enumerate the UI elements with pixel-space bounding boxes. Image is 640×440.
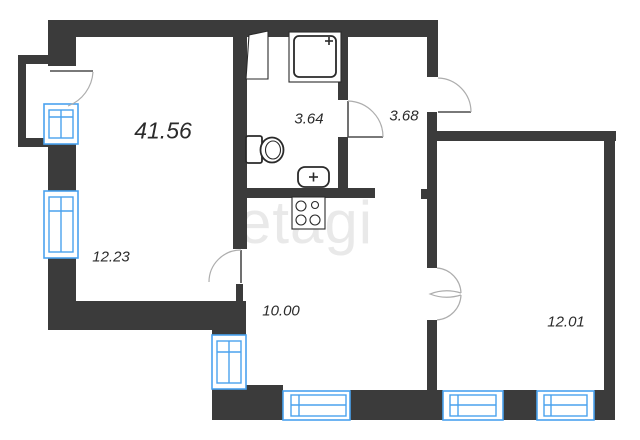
floor-plan: etagi [0, 0, 640, 440]
stove-icon [292, 197, 325, 229]
window-bedroom-bottom-left [443, 391, 503, 420]
shower-icon [289, 32, 341, 82]
total-area-label: 41.56 [134, 118, 192, 145]
washbasin-icon [298, 167, 329, 187]
floor-plan-page: { "title": "apartment floor plan", "wate… [0, 0, 640, 440]
bedroom-area-label: 12.01 [547, 314, 585, 331]
hallway-area-label: 3.68 [389, 108, 418, 125]
living-room-door-arc [209, 250, 241, 283]
floor-plan-drawing [0, 0, 640, 440]
window-kitchen-bottom [283, 391, 350, 420]
kitchen-area-label: 10.00 [262, 303, 300, 320]
entry-door-arc [438, 78, 471, 112]
living-room-area-label: 12.23 [92, 249, 130, 266]
bathroom-area-label: 3.64 [294, 111, 323, 128]
toilet-icon [246, 136, 284, 163]
window-kitchen-left [212, 335, 246, 389]
bathroom-door-arc [348, 101, 383, 137]
window-left-lower [44, 191, 78, 258]
balcony-door-arc [50, 71, 93, 106]
window-bedroom-bottom-right [537, 391, 594, 420]
bedroom-double-door-arc [430, 268, 461, 320]
wardrobe-icon [246, 31, 268, 79]
window-left-upper [44, 104, 78, 144]
